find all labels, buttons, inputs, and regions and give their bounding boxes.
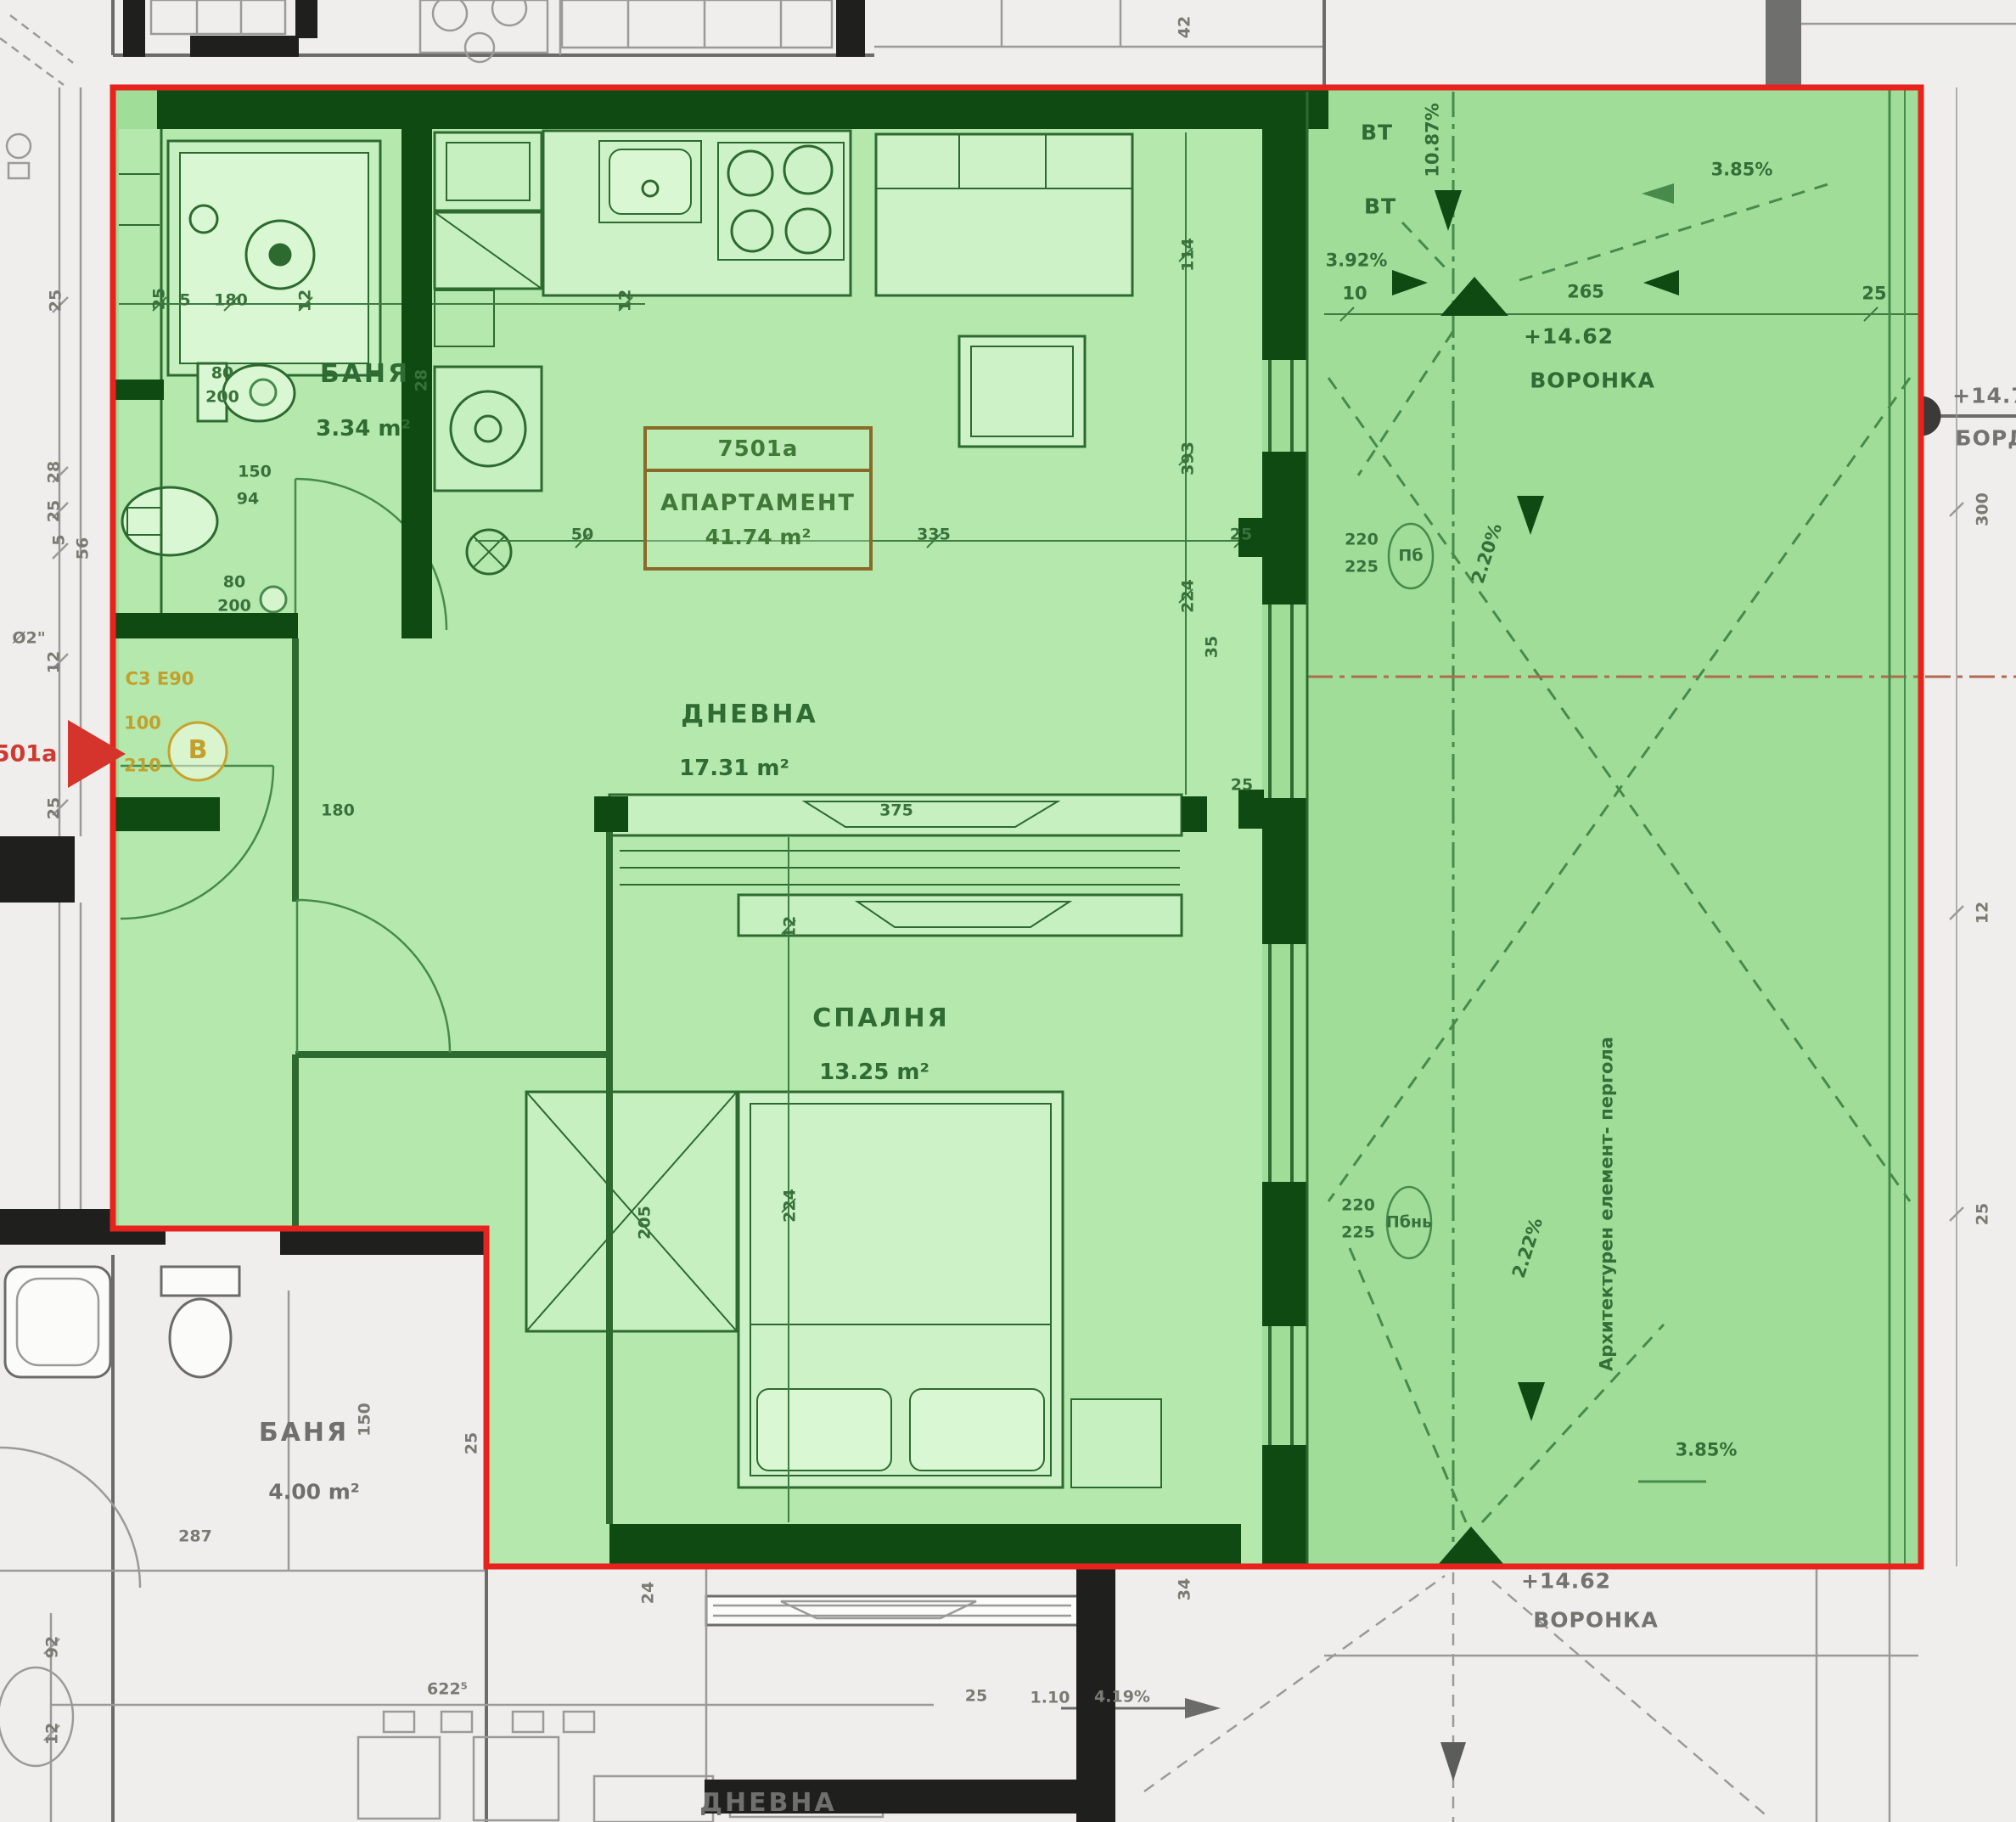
floor-plan: 7501a АПАРТАМЕНТ 41.74 m² БАНЯ3.34 m²ДНЕ… bbox=[0, 0, 2016, 1822]
apartment-unit-number: 7501a bbox=[647, 430, 869, 472]
floor-plan-drawing bbox=[0, 0, 2016, 1822]
apartment-kind: АПАРТАМЕНТ bbox=[660, 490, 856, 516]
apartment-area: 41.74 m² bbox=[705, 525, 811, 549]
apartment-label-box: 7501a АПАРТАМЕНТ 41.74 m² bbox=[643, 426, 873, 571]
